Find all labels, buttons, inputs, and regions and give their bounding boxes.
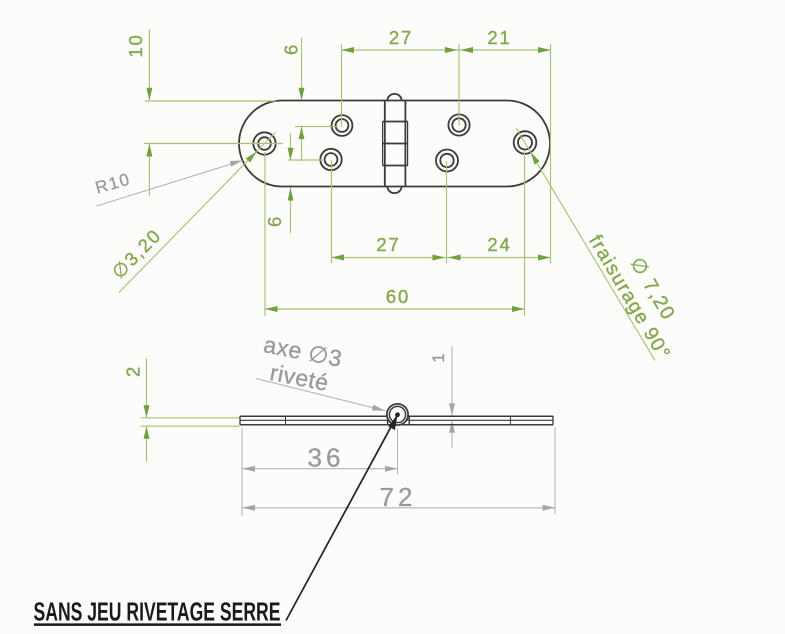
svg-text:6: 6 [281,43,302,55]
svg-text:R10: R10 [93,170,132,198]
svg-text:6: 6 [264,215,285,227]
svg-text:SANS JEU RIVETAGE SERRE: SANS JEU RIVETAGE SERRE [34,599,281,627]
svg-text:60: 60 [386,286,410,307]
svg-text:36: 36 [308,443,345,473]
svg-text:27: 27 [376,234,400,255]
svg-text:1: 1 [429,353,448,362]
svg-text:24: 24 [487,234,511,255]
svg-text:10: 10 [125,33,146,57]
svg-text:72: 72 [380,482,417,512]
svg-text:27: 27 [389,27,413,48]
svg-text:21: 21 [487,27,511,48]
svg-text:2: 2 [123,365,144,377]
